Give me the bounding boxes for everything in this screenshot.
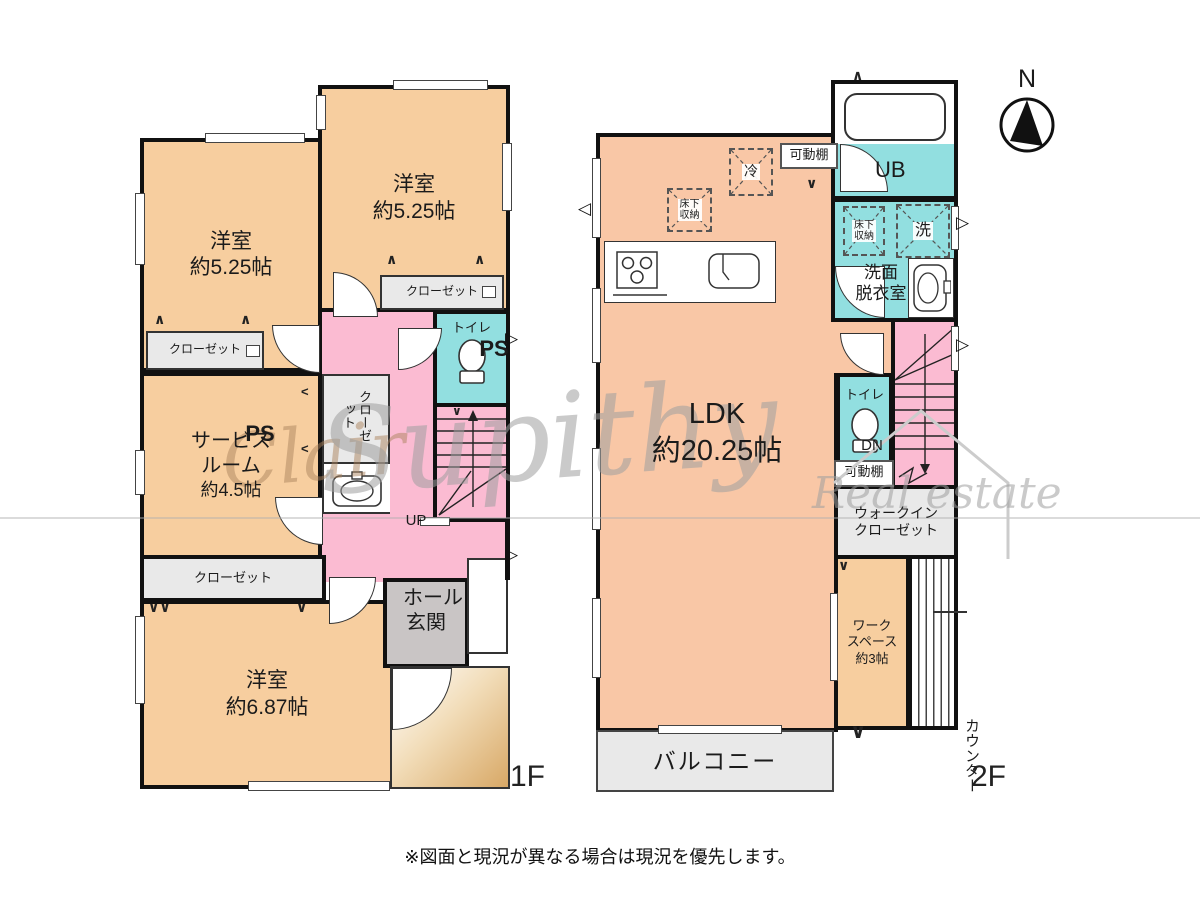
hall-label: ホール [388,586,478,611]
fold-mark: ∨ [850,722,866,742]
closet-vertical: クローゼット [322,374,390,464]
fold-mark: ∧ [154,312,165,326]
floor-storage-washroom: 床下収納 [843,206,885,256]
fold-mark: ∨ [452,405,462,417]
wic-line1: ウォークイン [854,505,938,523]
counter-label: カウンター [963,698,980,813]
window [135,193,145,265]
stairs-treads-icon [895,322,954,488]
compass-north-label: N [995,64,1059,95]
walk-in-closet: ウォークイン クローゼット [834,485,958,559]
service-room-line3: 約4.5帖 [200,479,261,502]
window [592,158,601,238]
washer-label: 洗 [913,222,933,240]
fold-mark: < [301,442,309,455]
bedroom-c: 洋室 約6.87帖 [140,600,394,789]
washbasin-icon [331,470,383,508]
disclaimer-note: ※図面と現況が異なる場合は現況を優先します。 [0,843,1200,869]
service-room-line2: ルーム [201,454,260,479]
window [205,133,305,143]
vent-arrow: ▷ [505,546,518,563]
window [393,80,488,90]
workspace-line2: スペース [847,634,897,650]
bedroom-b-name: 洋室 [210,229,252,255]
toilet-1f: トイレ [433,310,510,415]
closet-a: クローゼット [380,275,504,310]
window [592,448,601,530]
fold-mark: ∨ [838,558,849,572]
counter-leader-line [933,611,967,613]
basin-niche-1f [322,462,390,514]
floor2-label: 2F [971,760,1006,794]
ps-b-label: PS [240,420,280,448]
window [830,593,838,681]
workspace-line3: 約3帖 [855,651,888,667]
vent-arrow: ▷ [505,330,518,347]
floor-storage-ldk-label: 床下収納 [678,199,702,221]
compass: N [995,64,1059,158]
bedroom-a-size: 約5.25帖 [373,199,456,225]
floorplan-canvas: ホール UP 洋室 約5.25帖 クローゼット 洋室 約5.25帖 クローゼット… [0,0,1200,899]
washroom-label: 洗面脱衣室 [841,262,921,305]
vent-arrow: ▷ [956,336,969,353]
window [248,781,390,791]
movable-shelf-top: 可動棚 [780,143,838,169]
closet-vertical-label: クローゼット [340,390,372,442]
bedroom-c-name: 洋室 [246,668,288,694]
stairs-down-2f [891,318,958,492]
window [592,598,601,678]
bathtub-icon [835,88,954,144]
toilet-2f-label: トイレ [840,387,889,403]
window [592,288,601,363]
kitchen-counter [604,241,776,303]
ldk-size: 約20.25帖 [652,433,783,469]
refrigerator-space: 冷 [729,148,773,196]
up-label: UP [398,512,434,531]
movable-shelf-top-label: 可動棚 [782,147,836,163]
fold-mark: ∨∨ [148,600,171,614]
window [135,616,145,704]
fold-mark: < [301,385,309,398]
vent-arrow: ▷ [956,214,969,231]
fold-mark: ∧ [474,252,485,266]
bedroom-b-size: 約5.25帖 [190,255,273,281]
movable-shelf-bottom: 可動棚 [834,460,894,487]
floor-storage-washroom-label: 床下収納 [852,220,876,242]
closet-b: クローゼット [146,331,264,370]
fold-mark: ∧ [386,252,397,266]
window [658,725,782,734]
refrigerator-label: 冷 [742,164,760,179]
ldk-name: LDK [689,396,745,432]
compass-icon [997,95,1057,155]
closet-a-label: クローゼット [382,284,502,299]
closet-b-label: クローゼット [148,342,262,357]
vent-arrow: ◁ [578,200,591,217]
ub-label: UB [875,156,954,184]
fold-mark: ∨ [296,600,307,614]
ldk: LDK 約20.25帖 [596,133,838,732]
fold-mark: ∧ [240,312,251,326]
movable-shelf-bottom-label: 可動棚 [836,464,892,480]
bedroom-a-name: 洋室 [393,172,435,198]
window [502,143,512,211]
kitchen-fixtures-icon [605,242,775,301]
bedroom-c-size: 約6.87帖 [226,695,309,721]
fold-mark: ∨ [806,176,817,190]
workspace: ワーク スペース 約3帖 [834,555,910,730]
washer-space: 洗 [896,204,950,258]
balcony-label: バルコニー [653,747,778,776]
fold-mark: ∧ [852,68,863,82]
floor1-label: 1F [510,760,545,794]
balcony: バルコニー [596,730,834,792]
window [135,450,145,495]
stairs-up-1f [433,403,510,522]
closet-c-label: クローゼット [144,570,322,586]
window [316,95,326,130]
floor-storage-ldk: 床下収納 [667,188,712,232]
wic-line2: クローゼット [854,522,938,540]
closet-c: クローゼット [140,555,326,602]
dn-label: DN [852,437,892,456]
workspace-line1: ワーク [852,618,891,634]
genkan-label: 玄関 [406,611,446,636]
counter-desk [908,555,958,730]
stairs-treads-icon [437,407,506,518]
